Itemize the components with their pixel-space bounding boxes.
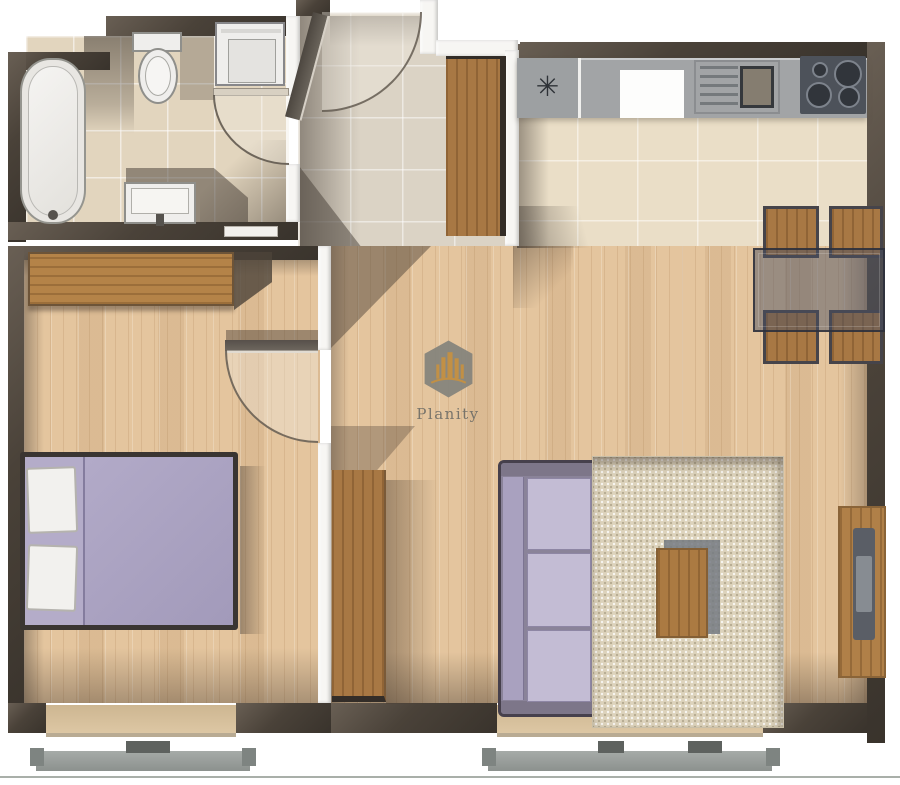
- window-handle-tab: [688, 741, 722, 753]
- living-window-frame: [497, 733, 763, 737]
- sink-basin: [131, 188, 189, 214]
- sink-faucet: [156, 214, 164, 226]
- bedroom-window-recess: [46, 705, 236, 733]
- washing-machine-panel: [221, 29, 281, 33]
- tv-mount-bracket: [856, 556, 872, 612]
- sofa-cushion: [527, 553, 591, 627]
- counter-notch: [620, 70, 684, 118]
- washing-machine: [215, 22, 285, 86]
- living-window-sill: [488, 751, 772, 771]
- plan-bottom-edge-line: [0, 776, 900, 778]
- bedroom-living-wall: [318, 246, 331, 350]
- bedroom-bottom-wall: [8, 703, 46, 733]
- bedroom-window-frame: [46, 733, 236, 737]
- bathtub-faucet: [48, 210, 58, 220]
- bathroom-sink: [124, 182, 196, 224]
- living-bottom-wall: [331, 703, 497, 733]
- bathroom-right-wall: [286, 164, 300, 222]
- bedroom-wardrobe: [28, 252, 234, 306]
- toilet-bowl: [138, 48, 178, 104]
- window-sill-cap: [482, 748, 496, 766]
- burner: [834, 60, 862, 88]
- tv-stand: [332, 470, 386, 702]
- wall-niche: [224, 226, 278, 237]
- window-handle-tab: [126, 741, 170, 753]
- bed-pillow: [26, 466, 78, 534]
- washing-machine-door: [228, 39, 276, 83]
- watermark: Planity: [398, 340, 498, 426]
- sofa-cushion: [527, 478, 591, 550]
- kitchen-sink-unit: [694, 60, 780, 114]
- hexagon-skyline-icon: [424, 340, 473, 398]
- floor-plan: ✳: [0, 0, 900, 785]
- window-sill-cap: [30, 748, 44, 766]
- watermark-brand: Planity: [398, 405, 498, 423]
- window-sill-cap: [766, 748, 780, 766]
- glass-dining-table: [753, 248, 885, 332]
- sofa-armrest: [501, 701, 595, 714]
- bed-duvet: [83, 457, 233, 625]
- double-bed: [20, 452, 238, 630]
- wall-tv: [853, 528, 875, 640]
- window-sill-cap: [242, 748, 256, 766]
- table-inner-edge: [758, 253, 880, 327]
- kitchen-sink-basin: [740, 66, 774, 108]
- window-handle-tab: [598, 741, 624, 753]
- burner: [812, 62, 828, 78]
- toilet-seat: [145, 56, 171, 96]
- sofa-cushion: [527, 630, 591, 702]
- burner: [806, 82, 832, 108]
- bedroom-bottom-wall: [236, 703, 331, 733]
- bedroom-living-wall: [318, 443, 331, 703]
- appliance-symbol: ✳: [536, 71, 559, 102]
- coffee-table: [656, 548, 708, 638]
- sofa-backrest: [503, 477, 524, 700]
- bathtub-basin: [28, 66, 78, 216]
- sofa-3-seat: [498, 460, 598, 717]
- bedroom-window-sill: [36, 751, 250, 771]
- bed-pillow: [26, 544, 78, 612]
- burner: [838, 86, 860, 108]
- sofa-armrest: [501, 463, 595, 476]
- sink-drainboard: [700, 66, 738, 110]
- hall-wardrobe: [446, 56, 506, 236]
- cooktop: [800, 56, 866, 114]
- bathtub: [20, 58, 86, 224]
- refrigerator-unit: ✳: [517, 58, 581, 118]
- exterior-white-gap: [436, 0, 520, 44]
